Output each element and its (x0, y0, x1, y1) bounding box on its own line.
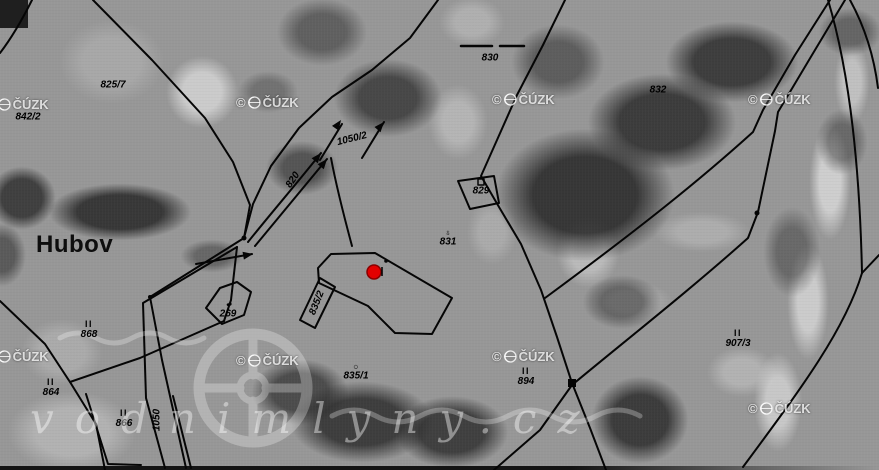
cuzk-text: ČÚZK (519, 92, 555, 107)
cuzk-text: ČÚZK (13, 349, 49, 364)
cuzk-watermark: © ČÚZK (236, 353, 299, 368)
selected-point-marker[interactable] (367, 259, 388, 279)
cuzk-text: ČÚZK (263, 95, 299, 110)
cuzk-text: ČÚZK (775, 401, 811, 416)
map-viewport[interactable]: 825/7842/28308321050/2820829♁831•269835/… (0, 0, 879, 470)
survey-arrowheads (243, 120, 385, 260)
globe-icon (0, 350, 11, 363)
cuzk-watermark: © ČÚZK (748, 92, 811, 107)
vodnimlyny-watermark: vodnimlyny.cz (30, 394, 601, 443)
globe-icon (248, 96, 261, 109)
copyright-symbol: © (236, 95, 246, 110)
copyright-symbol: © (236, 353, 246, 368)
cuzk-watermark: © ČÚZK (492, 349, 555, 364)
place-name-label: Hubov (36, 231, 113, 259)
globe-icon (0, 98, 11, 111)
cuzk-text: ČÚZK (13, 97, 49, 112)
globe-icon (504, 93, 517, 106)
cuzk-watermark: © ČÚZK (0, 349, 49, 364)
copyright-symbol: © (492, 92, 502, 107)
globe-icon (248, 354, 261, 367)
cuzk-watermark: © ČÚZK (492, 92, 555, 107)
copyright-symbol: © (748, 401, 758, 416)
cuzk-watermark: © ČÚZK (748, 401, 811, 416)
cuzk-text: ČÚZK (519, 349, 555, 364)
cuzk-watermark: © ČÚZK (236, 95, 299, 110)
globe-icon (504, 350, 517, 363)
cuzk-text: ČÚZK (263, 353, 299, 368)
copyright-symbol: © (492, 349, 502, 364)
cuzk-text: ČÚZK (775, 92, 811, 107)
cuzk-watermark: © ČÚZK (0, 97, 49, 112)
globe-icon (760, 93, 773, 106)
globe-icon (760, 402, 773, 415)
copyright-symbol: © (748, 92, 758, 107)
